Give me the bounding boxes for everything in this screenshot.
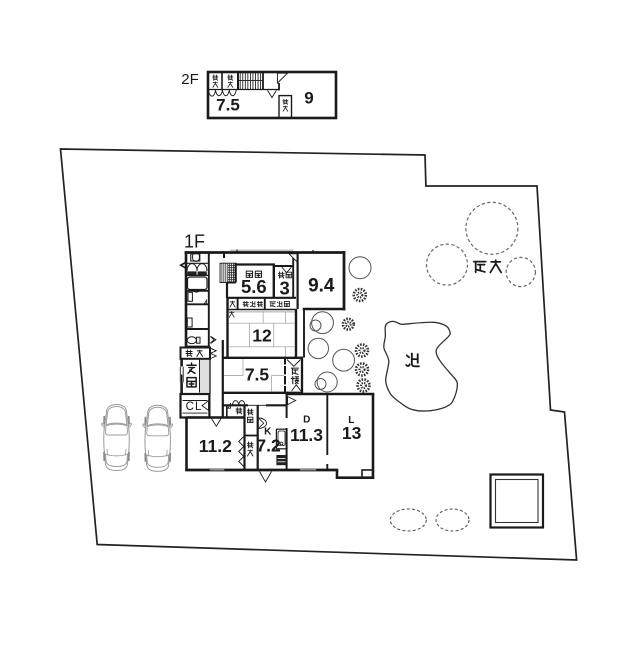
svg-text:9: 9 <box>304 89 313 108</box>
svg-text:9.4: 9.4 <box>308 276 335 297</box>
svg-text:3: 3 <box>279 278 289 299</box>
svg-text:CL: CL <box>186 401 203 413</box>
svg-text:11.3: 11.3 <box>290 425 323 445</box>
svg-text:2F: 2F <box>181 71 199 88</box>
svg-text:7.5: 7.5 <box>216 96 240 115</box>
svg-text:11.2: 11.2 <box>199 436 232 456</box>
svg-text:7.5: 7.5 <box>245 365 270 385</box>
svg-text:12: 12 <box>252 325 272 345</box>
svg-text:13: 13 <box>342 423 362 443</box>
svg-text:7.2: 7.2 <box>256 436 281 456</box>
svg-text:D: D <box>303 414 310 425</box>
svg-text:1F: 1F <box>184 232 205 252</box>
svg-text:5.6: 5.6 <box>241 276 267 297</box>
